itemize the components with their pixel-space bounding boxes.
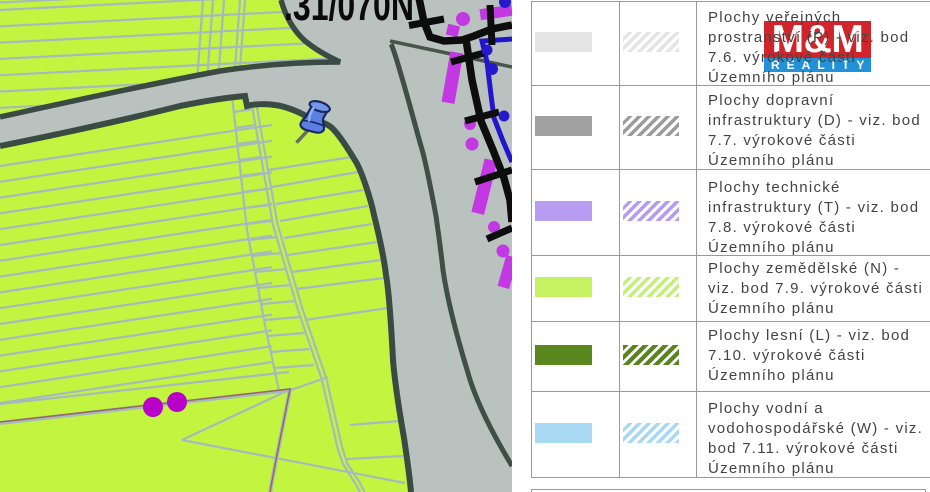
svg-text:.31/070N: .31/070N xyxy=(284,0,414,30)
